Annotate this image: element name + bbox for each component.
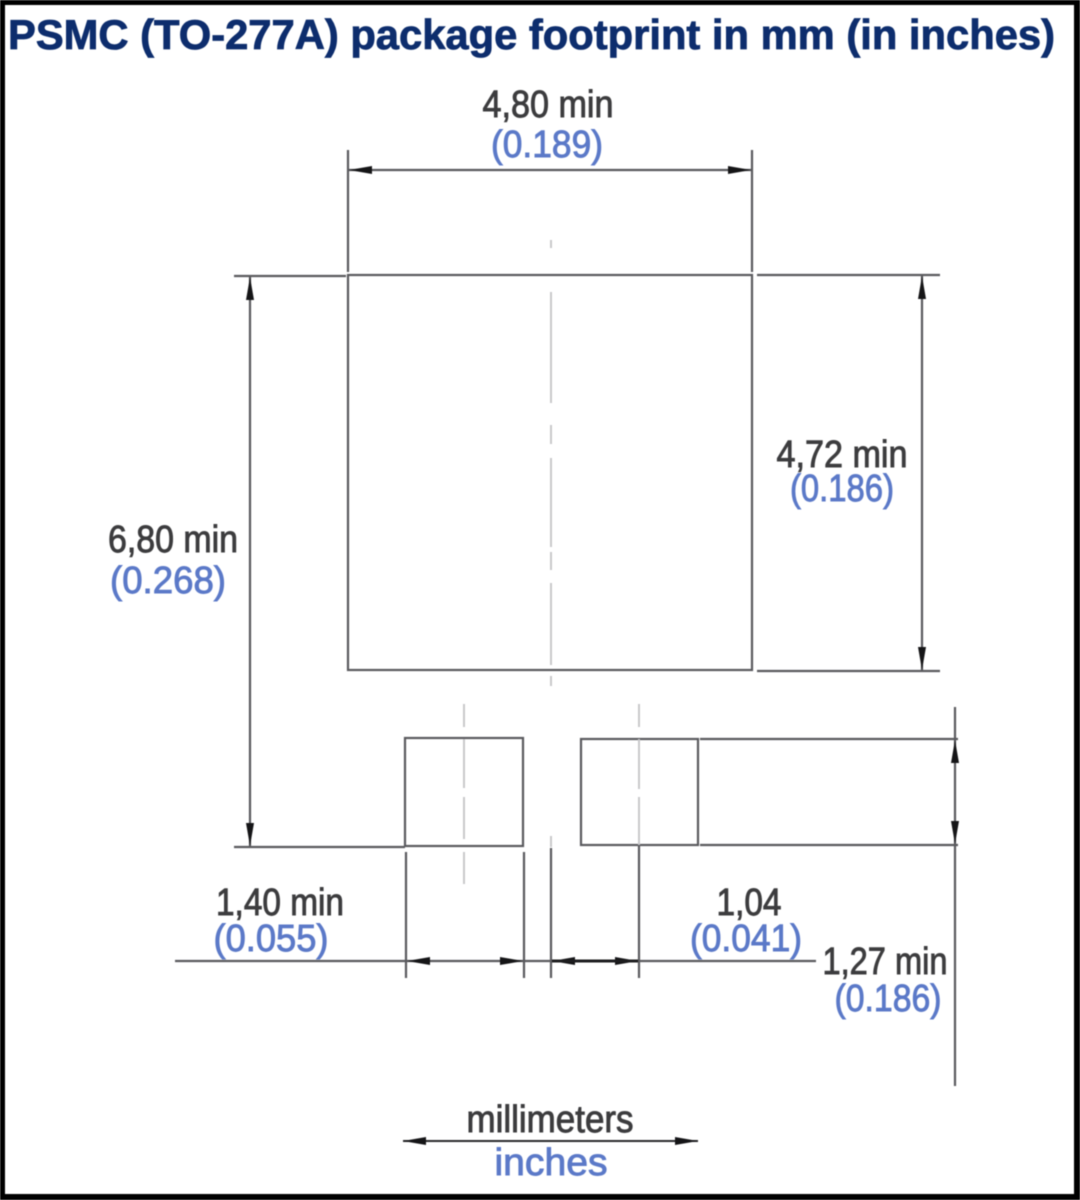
svg-text:(0.186): (0.186) xyxy=(835,978,942,1020)
svg-text:6,80 min: 6,80 min xyxy=(108,519,238,561)
svg-text:(0.041): (0.041) xyxy=(690,918,802,960)
svg-text:inches: inches xyxy=(495,1142,608,1184)
svg-text:4,80 min: 4,80 min xyxy=(483,84,614,126)
svg-text:(0.186): (0.186) xyxy=(790,468,894,510)
svg-text:(0.189): (0.189) xyxy=(491,124,603,166)
svg-text:PSMC (TO-277A) package footpri: PSMC (TO-277A) package footprint in mm (… xyxy=(8,11,1055,58)
svg-text:millimeters: millimeters xyxy=(467,1099,634,1141)
svg-text:1,27 min: 1,27 min xyxy=(823,941,948,983)
svg-text:(0.055): (0.055) xyxy=(214,918,329,960)
svg-text:(0.268): (0.268) xyxy=(110,560,226,602)
